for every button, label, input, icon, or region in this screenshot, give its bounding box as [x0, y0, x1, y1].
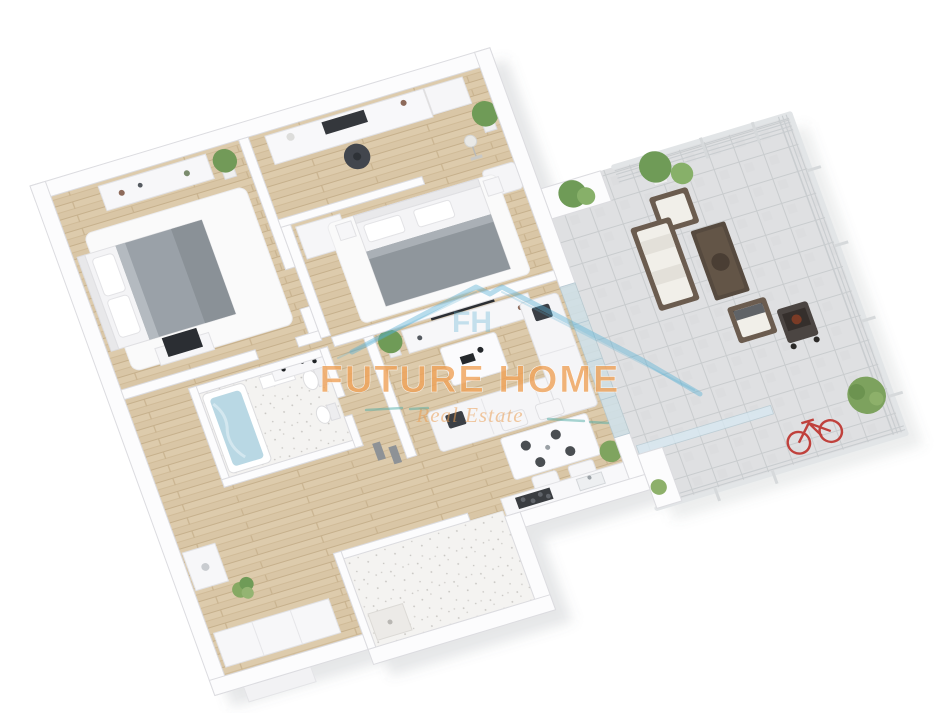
floor-plan-render: FH FUTURE HOME Real Estate — [0, 0, 950, 713]
watermark-title: FUTURE HOME — [320, 359, 621, 401]
watermark-subtitle: Real Estate — [415, 403, 523, 427]
watermark-monogram: FH — [452, 306, 492, 339]
floor-plan-svg: FH FUTURE HOME Real Estate — [0, 0, 950, 713]
